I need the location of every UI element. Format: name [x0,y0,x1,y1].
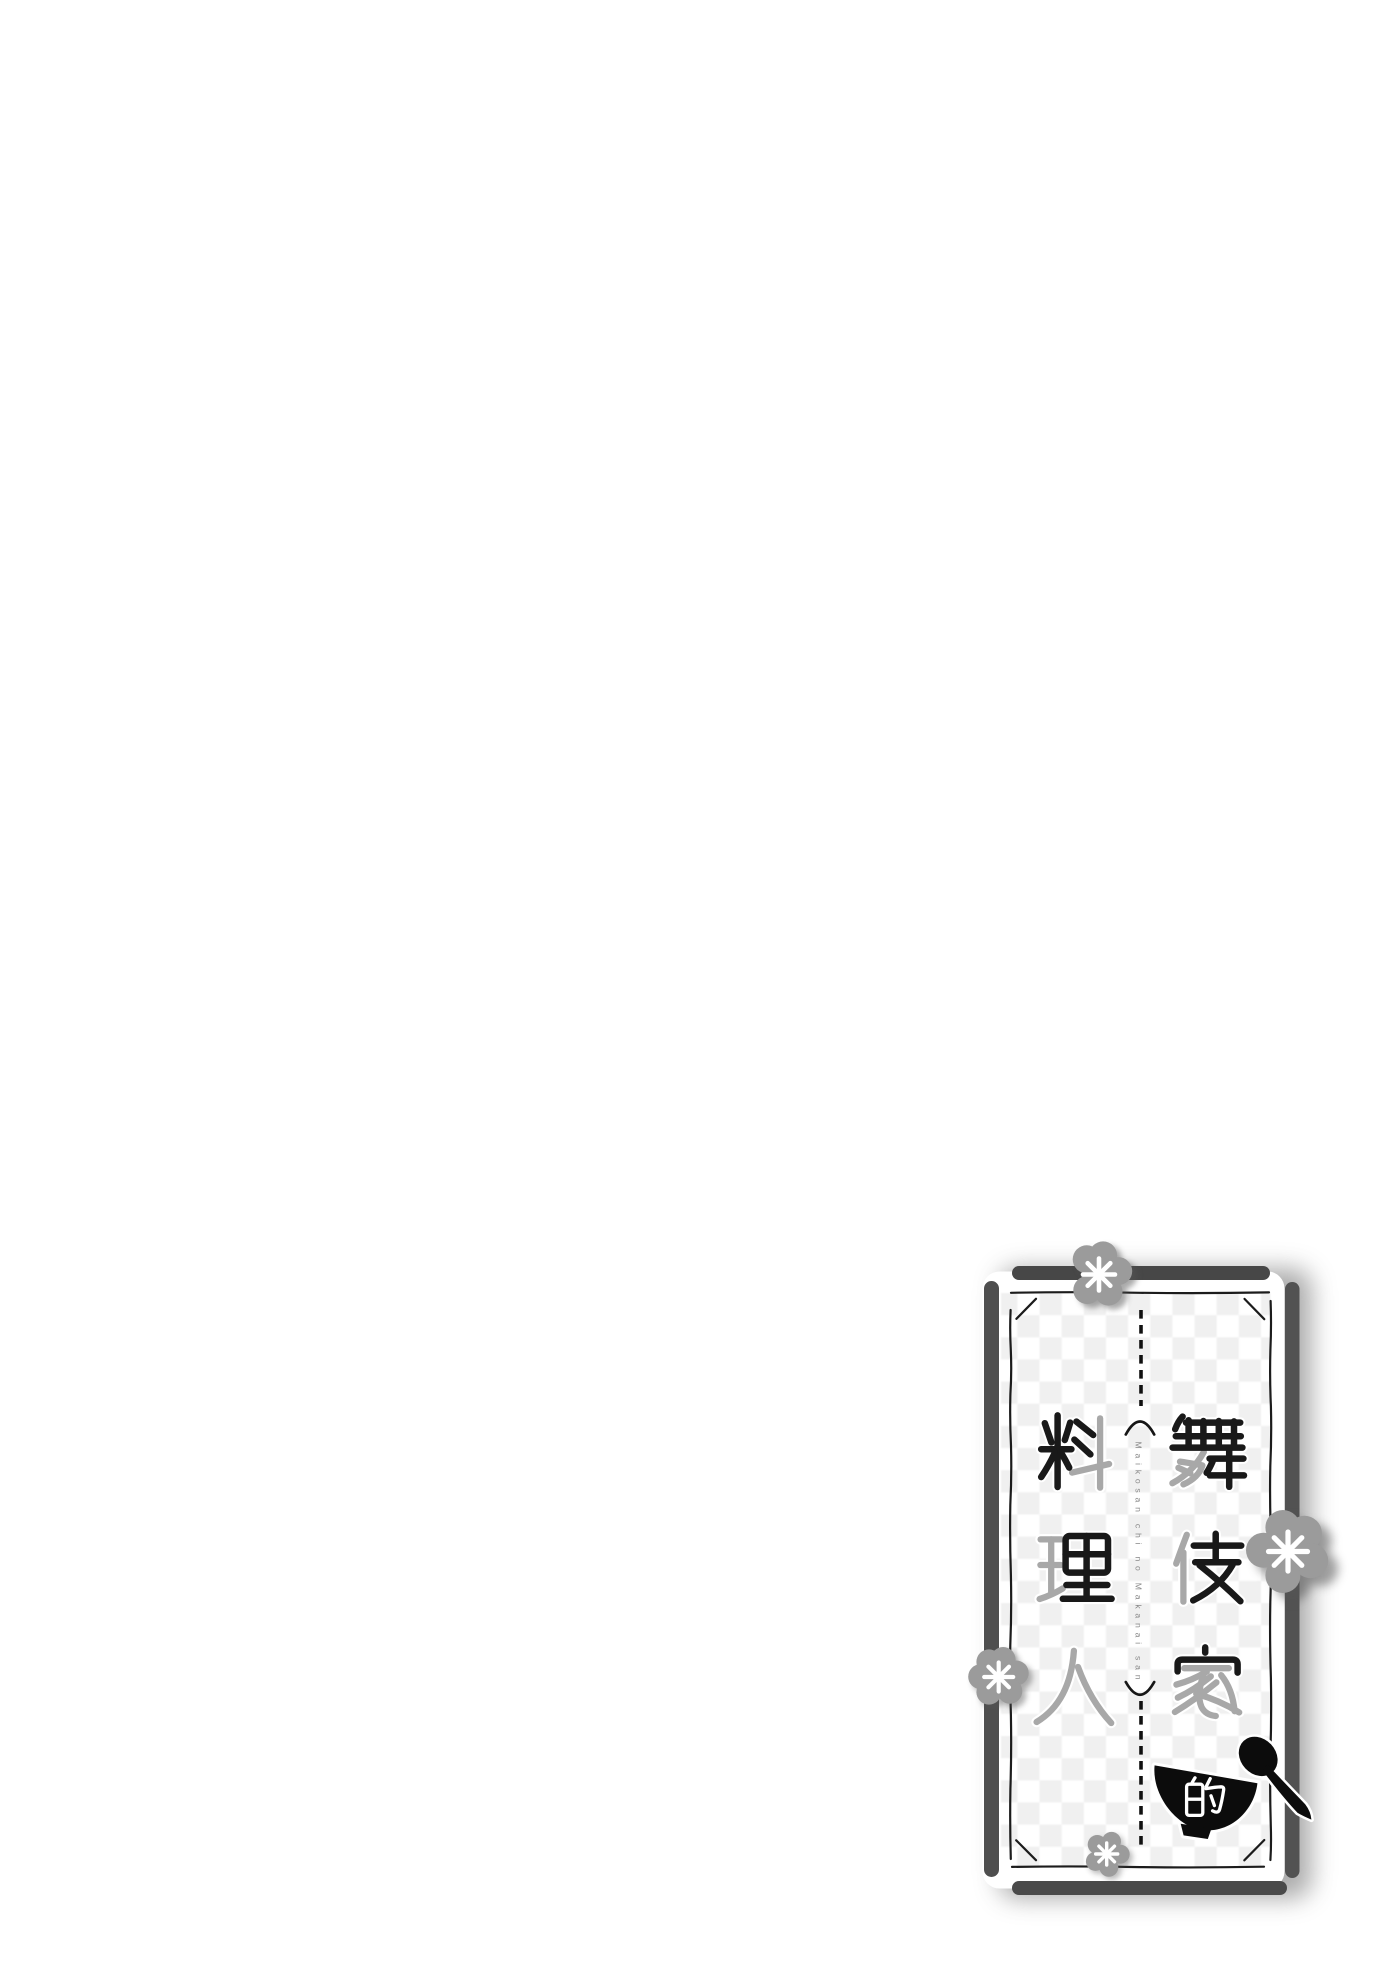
svg-text:Maikosan chi no Makanai san: Maikosan chi no Makanai san [1134,1442,1144,1685]
